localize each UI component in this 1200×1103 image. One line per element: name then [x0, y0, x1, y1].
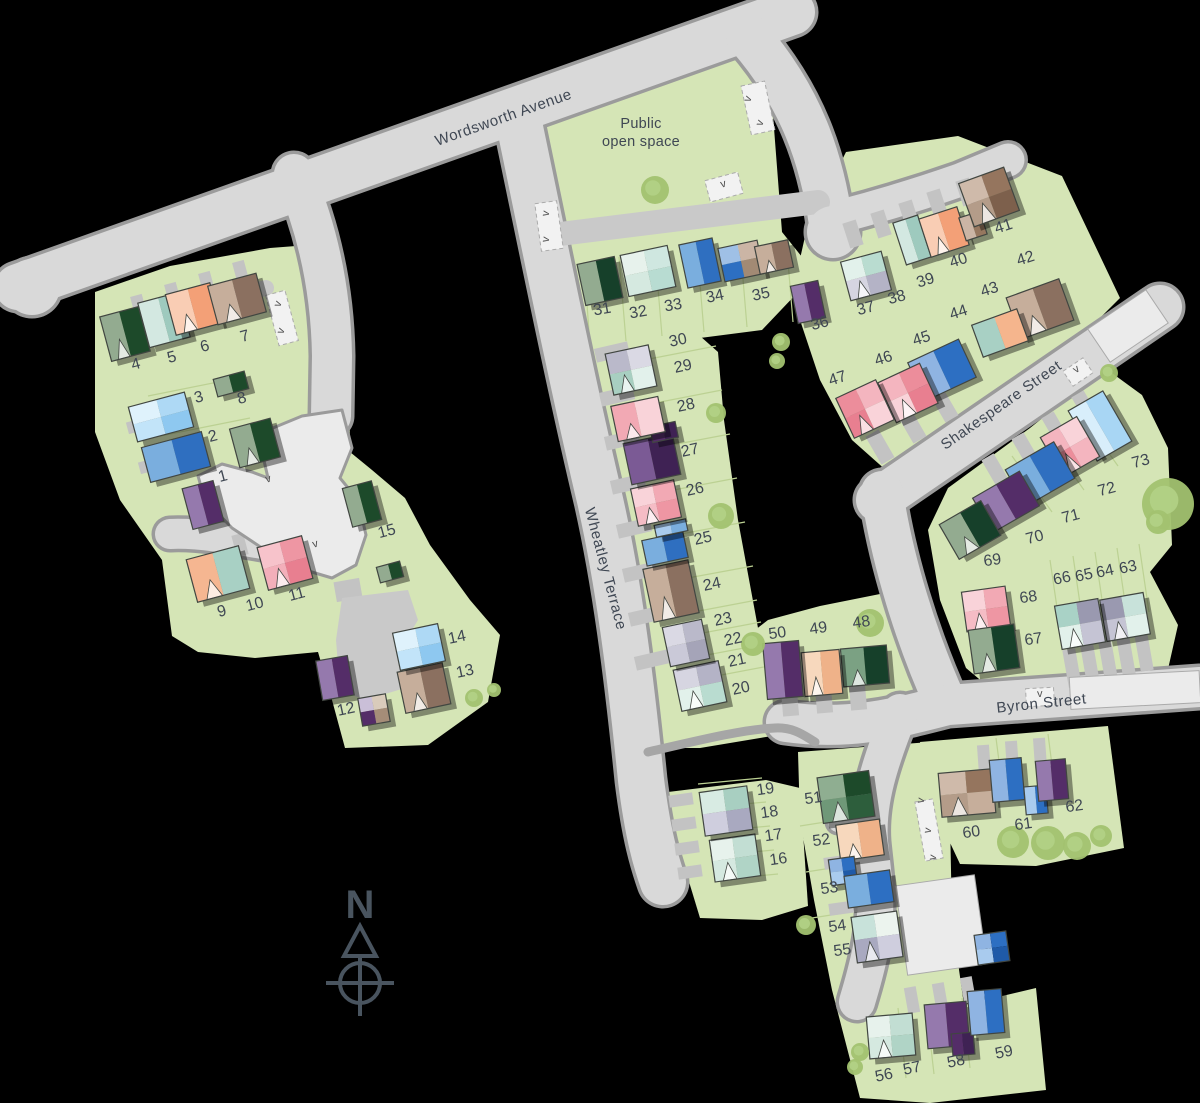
tree-icon: [1031, 826, 1065, 860]
plot-number-19[interactable]: 19: [755, 780, 775, 799]
house-section: [702, 811, 729, 836]
plot-number-58[interactable]: 58: [946, 1051, 967, 1071]
plot-number-29[interactable]: 29: [673, 356, 694, 376]
plot-number-61[interactable]: 61: [1013, 815, 1033, 834]
plot-number-23[interactable]: 23: [713, 609, 734, 629]
plot-number-22[interactable]: 22: [723, 629, 744, 649]
house-section: [874, 911, 900, 937]
plot-number-35[interactable]: 35: [751, 284, 772, 304]
plot-number-51[interactable]: 51: [803, 789, 823, 808]
site-plan: vvvvvvvvvvvvvv 1234567891011121314151617…: [0, 0, 1200, 1103]
house: [851, 910, 909, 969]
house-section: [846, 793, 875, 819]
plot-number-28[interactable]: 28: [676, 395, 697, 415]
plot-number-60[interactable]: 60: [961, 823, 981, 842]
plot-number-64[interactable]: 64: [1095, 561, 1116, 581]
plot-number-65[interactable]: 65: [1074, 565, 1095, 585]
plot-number-12[interactable]: 12: [336, 699, 357, 719]
tree-highlight: [771, 355, 780, 364]
plot-number-30[interactable]: 30: [668, 330, 689, 350]
tree-icon: [769, 353, 785, 369]
plot-number-59[interactable]: 59: [994, 1042, 1015, 1062]
house-section: [976, 948, 994, 965]
tree-highlight: [775, 336, 785, 346]
plot-number-27[interactable]: 27: [680, 440, 701, 460]
house: [709, 833, 766, 888]
house-section: [1076, 599, 1101, 624]
plot-number-68[interactable]: 68: [1018, 588, 1038, 607]
house-section: [992, 946, 1010, 963]
tree-icon: [796, 915, 816, 935]
house-section: [974, 933, 992, 950]
plot-number-21[interactable]: 21: [727, 650, 748, 670]
plot-number-67[interactable]: 67: [1023, 630, 1043, 649]
tree-highlight: [1067, 836, 1082, 851]
tree-icon: [706, 403, 726, 423]
house-section: [938, 771, 967, 795]
tree-icon: [1063, 832, 1091, 860]
tree-highlight: [1150, 486, 1179, 515]
plot-number-50[interactable]: 50: [767, 624, 787, 643]
plot-number-56[interactable]: 56: [874, 1065, 895, 1085]
tree-icon: [772, 333, 790, 351]
compass-n-label: N: [346, 883, 375, 927]
plot-number-57[interactable]: 57: [902, 1058, 923, 1078]
tree-highlight: [1036, 831, 1055, 850]
tree-highlight: [849, 1061, 858, 1070]
house: [605, 344, 663, 401]
plot-number-31[interactable]: 31: [592, 300, 613, 320]
tree-highlight: [1103, 367, 1113, 377]
house: [844, 869, 900, 914]
tree-highlight: [712, 507, 726, 521]
open-space-label-line1: Public: [620, 116, 661, 132]
plot-number-16[interactable]: 16: [768, 850, 788, 869]
plot-number-20[interactable]: 20: [731, 678, 752, 698]
plot-number-26[interactable]: 26: [685, 479, 706, 499]
plot-number-34[interactable]: 34: [705, 286, 726, 306]
tree-icon: [847, 1059, 863, 1075]
house: [989, 757, 1030, 808]
plot-number-33[interactable]: 33: [663, 296, 684, 316]
plot-number-54[interactable]: 54: [827, 917, 847, 936]
house-section: [866, 1015, 891, 1038]
plot-number-66[interactable]: 66: [1052, 568, 1073, 588]
plot-number-52[interactable]: 52: [811, 831, 831, 850]
tree-highlight: [799, 918, 810, 929]
plot-number-62[interactable]: 62: [1064, 797, 1084, 816]
turning-area: [1069, 671, 1200, 710]
open-space-label-line2: open space: [602, 134, 680, 150]
house-section: [851, 914, 877, 940]
plot-number-14[interactable]: 14: [447, 627, 468, 647]
house-section: [983, 586, 1008, 609]
house: [866, 1013, 921, 1065]
tree-icon: [487, 683, 501, 697]
tree-icon: [851, 1043, 869, 1061]
house-section: [699, 789, 726, 814]
house-section: [863, 645, 889, 685]
plot-number-18[interactable]: 18: [759, 803, 779, 822]
house-section: [961, 589, 986, 612]
house: [763, 640, 809, 705]
plot-number-55[interactable]: 55: [832, 941, 852, 960]
house-section: [967, 791, 996, 815]
house-section: [1055, 602, 1080, 627]
tree-icon: [1146, 510, 1170, 534]
house-section: [828, 858, 843, 873]
house-section: [735, 855, 761, 879]
tree-highlight: [709, 406, 720, 417]
house-section: [843, 771, 872, 797]
house-section: [990, 931, 1008, 948]
house: [699, 785, 758, 842]
tree-highlight: [645, 180, 660, 195]
house: [968, 623, 1025, 680]
plot-number-48[interactable]: 48: [851, 613, 871, 632]
plot-number-32[interactable]: 32: [628, 303, 649, 323]
tree-highlight: [745, 636, 758, 649]
house: [801, 649, 848, 703]
plot-number-63[interactable]: 63: [1118, 557, 1139, 577]
tree-icon: [1090, 825, 1112, 847]
house-section: [726, 808, 753, 833]
house: [662, 618, 716, 672]
plot-number-53[interactable]: 53: [819, 879, 839, 898]
tree-icon: [465, 689, 483, 707]
turning-area: [895, 875, 987, 975]
plot-number-69[interactable]: 69: [982, 551, 1002, 570]
house: [316, 655, 360, 707]
house: [840, 645, 895, 693]
house: [1055, 598, 1112, 656]
tree-highlight: [468, 692, 478, 702]
house: [967, 988, 1010, 1041]
tree-icon: [641, 176, 669, 204]
tree-highlight: [1150, 514, 1163, 527]
tree-highlight: [489, 685, 497, 693]
house-section: [891, 1034, 916, 1057]
house-section: [877, 934, 903, 960]
tree-icon: [708, 503, 734, 529]
house-section: [723, 786, 750, 811]
plot-number-17[interactable]: 17: [763, 826, 783, 845]
house-section: [841, 856, 856, 871]
tree-icon: [741, 632, 765, 656]
plot-number-49[interactable]: 49: [808, 619, 828, 638]
plot-number-24[interactable]: 24: [702, 574, 723, 594]
cul-de-sac: [4, 259, 60, 315]
site-plan-page: vvvvvvvvvvvvvv 1234567891011121314151617…: [0, 0, 1200, 1103]
tree-highlight: [854, 1046, 864, 1056]
plot-number-13[interactable]: 13: [455, 661, 476, 681]
house-section: [1080, 620, 1105, 645]
tree-icon: [1100, 364, 1118, 382]
house-section: [965, 769, 994, 793]
house-section: [889, 1013, 914, 1036]
tree-highlight: [1093, 828, 1105, 840]
plot-number-25[interactable]: 25: [693, 528, 714, 548]
